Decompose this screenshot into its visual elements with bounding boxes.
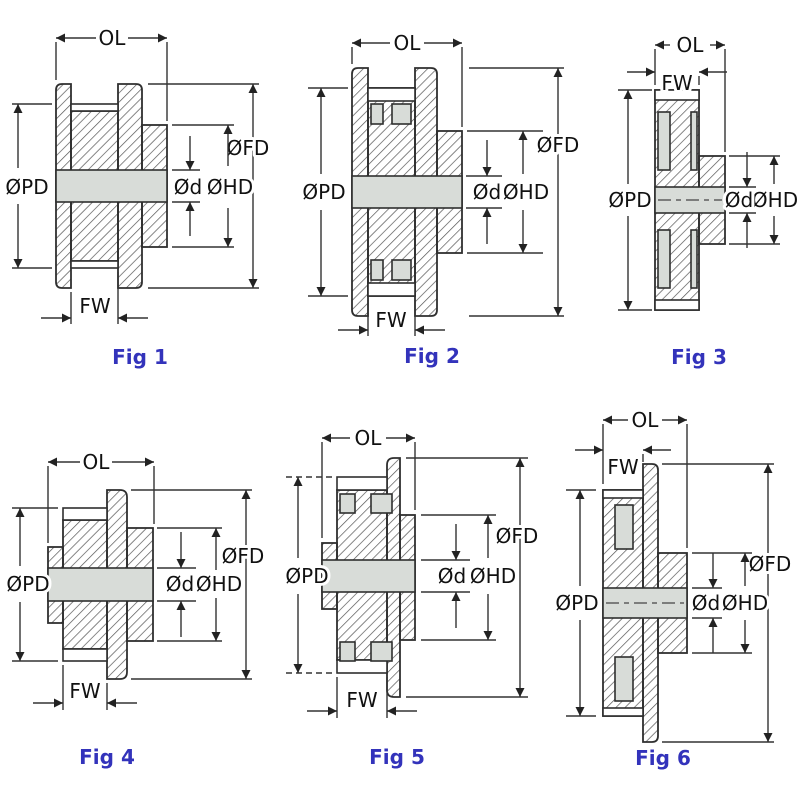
fig4-label-fd: ØFD [222, 544, 265, 568]
fig2-drawing: OL ØPD ØFD ØHD [266, 0, 566, 380]
fig1-dim-d: Ød [172, 136, 202, 236]
fig3-label-pd: ØPD [608, 188, 651, 212]
fig6-surface-strip-top [603, 490, 643, 498]
fig5-pulley [322, 458, 415, 697]
fig4-pulley [48, 490, 153, 679]
fig3-web-slot [658, 112, 670, 170]
fig2-bore [352, 176, 462, 208]
fig3-caption: Fig 3 [671, 345, 727, 369]
fig3-web-slot [691, 112, 697, 170]
fig3-dim-d: Ød [725, 152, 756, 248]
fig3-label-hd: ØHD [752, 188, 798, 212]
fig5-label-ol: OL [355, 426, 383, 450]
fig2-surface-strip-top [368, 88, 415, 101]
fig3-drawing: OL FW ØPD ØHD [566, 0, 800, 380]
fig1-surface-strip-bottom [71, 261, 118, 268]
fig4-surface-strip-top [63, 508, 107, 520]
fig4-cell: OL ØPD ØFD ØHD [0, 380, 266, 800]
fig4-label-ol: OL [83, 450, 111, 474]
fig2-label-ol: OL [394, 31, 422, 55]
fig1-pulley [56, 84, 167, 288]
fig5-tooth-block [340, 494, 355, 513]
fig2-caption: Fig 2 [404, 344, 460, 368]
fig5-dim-pd: ØPD [285, 477, 332, 673]
fig2-dim-d: Ød [466, 140, 502, 244]
fig6-web-slot [615, 657, 633, 701]
fig5-label-d: Ød [438, 564, 466, 588]
fig2-label-fw: FW [375, 308, 407, 332]
fig3-pulley [655, 90, 725, 310]
fig5-drawing: OL ØPD ØFD ØHD [266, 380, 566, 800]
fig1-label-fw: FW [79, 294, 111, 318]
fig5-label-fw: FW [346, 688, 378, 712]
fig4-caption: Fig 4 [79, 745, 135, 769]
fig3-web-slot [658, 230, 670, 288]
fig5-tooth-block [371, 494, 392, 513]
fig4-dim-d: Ød [157, 532, 196, 637]
fig6-cell: OL FW ØPD ØFD [566, 380, 800, 800]
fig1-drawing: OL ØPD ØFD ØHD [0, 0, 266, 380]
fig4-drawing: OL ØPD ØFD ØHD [0, 380, 266, 800]
fig5-dim-d: Ød [421, 524, 470, 628]
fig2-surface-strip-bottom [368, 283, 415, 296]
fig3-label-d: Ød [725, 188, 753, 212]
fig2-label-hd: ØHD [503, 180, 549, 204]
fig1-cell: OL ØPD ØFD ØHD [0, 0, 266, 380]
fig3-dim-pd: ØPD [608, 90, 652, 310]
fig4-label-pd: ØPD [6, 572, 49, 596]
fig6-pulley [603, 464, 687, 742]
fig3-cell: OL FW ØPD ØHD [566, 0, 800, 380]
fig5-tooth-block [340, 642, 355, 661]
fig5-label-pd: ØPD [285, 564, 328, 588]
fig6-caption: Fig 6 [635, 746, 691, 770]
fig4-label-d: Ød [166, 572, 194, 596]
fig2-tooth-block [371, 104, 383, 124]
fig2-tooth-block [392, 260, 411, 280]
fig1-surface-strip-top [71, 104, 118, 111]
fig1-label-ol: OL [99, 26, 127, 50]
fig6-label-hd: ØHD [722, 591, 768, 615]
fig2-cell: OL ØPD ØFD ØHD [266, 0, 566, 380]
fig6-label-fd: ØFD [749, 552, 792, 576]
fig6-dim-d: Ød [692, 553, 722, 653]
fig2-dim-pd: ØPD [302, 88, 348, 296]
fig6-label-pd: ØPD [555, 591, 598, 615]
fig4-bore [48, 568, 153, 601]
fig6-drawing: OL FW ØPD ØFD [566, 380, 800, 800]
fig3-web-slot [691, 230, 697, 288]
fig4-surface-strip-bottom [63, 649, 107, 661]
fig6-surface-strip-bottom [603, 708, 643, 716]
fig3-label-ol: OL [677, 33, 705, 57]
fig4-label-fw: FW [69, 679, 101, 703]
fig6-label-fw: FW [607, 455, 639, 479]
fig2-tooth-block [371, 260, 383, 280]
fig3-dim-fw: FW [627, 71, 727, 95]
fig1-label-fd: ØFD [227, 136, 270, 160]
fig1-bore [56, 170, 167, 202]
fig5-surface-strip-bottom [337, 660, 387, 673]
fig1-label-d: Ød [174, 175, 202, 199]
fig5-bore [322, 560, 415, 592]
fig2-label-d: Ød [473, 180, 501, 204]
fig2-tooth-block [392, 104, 411, 124]
fig5-caption: Fig 5 [369, 745, 425, 769]
fig4-label-hd: ØHD [196, 572, 242, 596]
drawing-sheet: OL ØPD ØFD ØHD [0, 0, 800, 800]
fig6-label-d: Ød [692, 591, 720, 615]
fig5-label-hd: ØHD [470, 564, 516, 588]
fig1-label-hd: ØHD [207, 175, 253, 199]
fig1-label-pd: ØPD [5, 175, 48, 199]
fig1-caption: Fig 1 [112, 345, 168, 369]
fig2-label-pd: ØPD [302, 180, 345, 204]
fig5-tooth-block [371, 642, 392, 661]
fig3-label-fw: FW [661, 71, 693, 95]
fig3-surface-strip-bottom [655, 300, 699, 310]
fig2-pulley [352, 68, 462, 316]
fig5-cell: OL ØPD ØFD ØHD [266, 380, 566, 800]
fig6-web-slot [615, 505, 633, 549]
fig5-surface-strip-top [337, 477, 387, 490]
fig1-dim-pd: ØPD [5, 104, 52, 268]
fig6-label-ol: OL [632, 408, 660, 432]
fig5-label-fd: ØFD [496, 524, 539, 548]
